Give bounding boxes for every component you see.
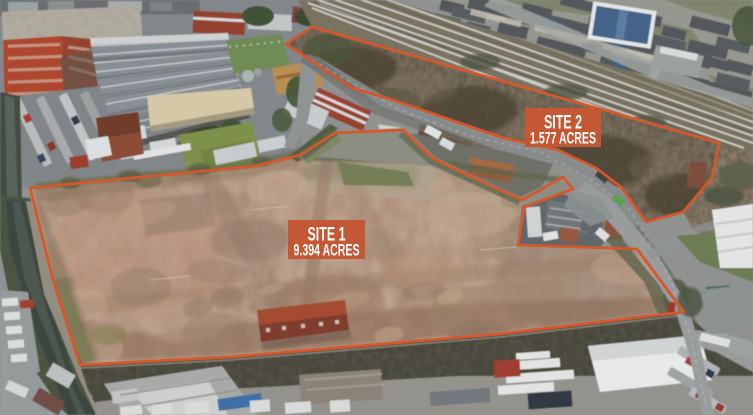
svg-text:9.394 ACRES: 9.394 ACRES [294,241,360,260]
svg-text:1.577 ACRES: 1.577 ACRES [530,129,596,148]
